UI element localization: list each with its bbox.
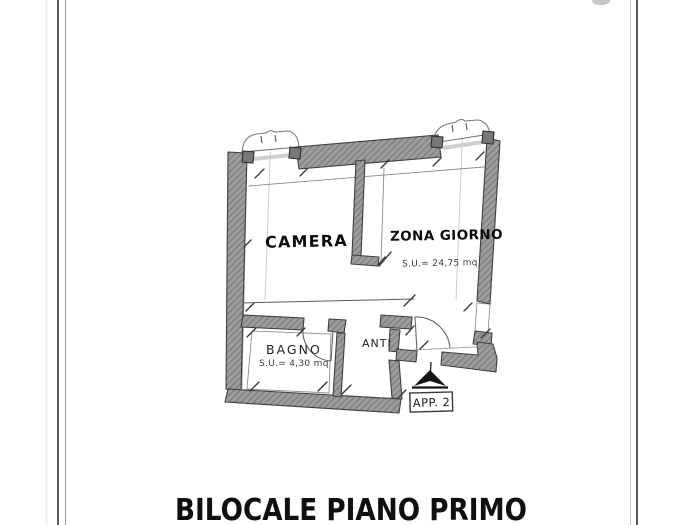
wall-entry-jamb — [396, 349, 417, 362]
tick — [404, 295, 415, 306]
door-leaf-entrance — [415, 317, 417, 351]
ceiling-line — [249, 166, 496, 186]
wall-divider-camera-zona — [352, 160, 365, 256]
wall-exterior-top — [296, 135, 441, 169]
tick — [420, 341, 428, 349]
wall-divider-foot — [351, 255, 379, 266]
dimension-line — [381, 168, 384, 262]
room-label-bagno: BAGNO — [266, 342, 322, 357]
tick — [476, 152, 484, 160]
wall-anti-top-bar — [380, 315, 412, 329]
pillar-bay-left-a — [242, 151, 254, 163]
right-wall-notch — [475, 303, 490, 333]
entrance-arrow-head — [414, 370, 446, 386]
scan-artifact-smudge — [592, 0, 610, 5]
wall-exterior-right-upper — [477, 138, 500, 304]
wall-exterior-left — [226, 152, 247, 392]
apartment-badge-label: APP. 2 — [413, 395, 451, 410]
floorplan-sheet: APP. 2 CAMERA ZONA GIORNO S.U.= 24,75 mq… — [0, 0, 700, 525]
room-area-zona-giorno: S.U.= 24,75 mq — [402, 258, 478, 269]
tick — [342, 385, 351, 394]
room-label-anti: ANTI — [362, 337, 392, 350]
room-label-zona-giorno: ZONA GIORNO — [390, 227, 503, 245]
wall-bagno-north-right — [328, 319, 346, 333]
apartment-badge: APP. 2 — [410, 392, 453, 412]
plan-title: BILOCALE PIANO PRIMO — [175, 493, 527, 525]
tick — [464, 303, 472, 311]
wall-anti-east-lower — [389, 360, 402, 399]
pillar-bay-left-b — [289, 147, 301, 159]
page-frame — [47, 0, 638, 525]
room-label-camera: CAMERA — [265, 231, 348, 252]
bay-left-rail — [253, 155, 291, 159]
tick — [433, 158, 441, 166]
wall-bagno-east — [333, 333, 345, 397]
bay-right-rail — [443, 142, 483, 148]
tick — [318, 382, 327, 391]
tick — [246, 303, 254, 311]
pillar-bay-right-b — [482, 131, 494, 144]
tick — [255, 169, 264, 178]
entrance-arrow-icon — [412, 362, 448, 388]
south-face-line — [240, 299, 414, 303]
wall-bagno-north-left — [241, 315, 304, 330]
scanned-floorplan-page: APP. 2 CAMERA ZONA GIORNO S.U.= 24,75 mq… — [0, 0, 700, 525]
room-area-bagno: S.U.= 4,30 mq — [259, 359, 329, 369]
pillar-bay-right-a — [431, 136, 443, 148]
door-arc-entrance — [415, 317, 450, 348]
